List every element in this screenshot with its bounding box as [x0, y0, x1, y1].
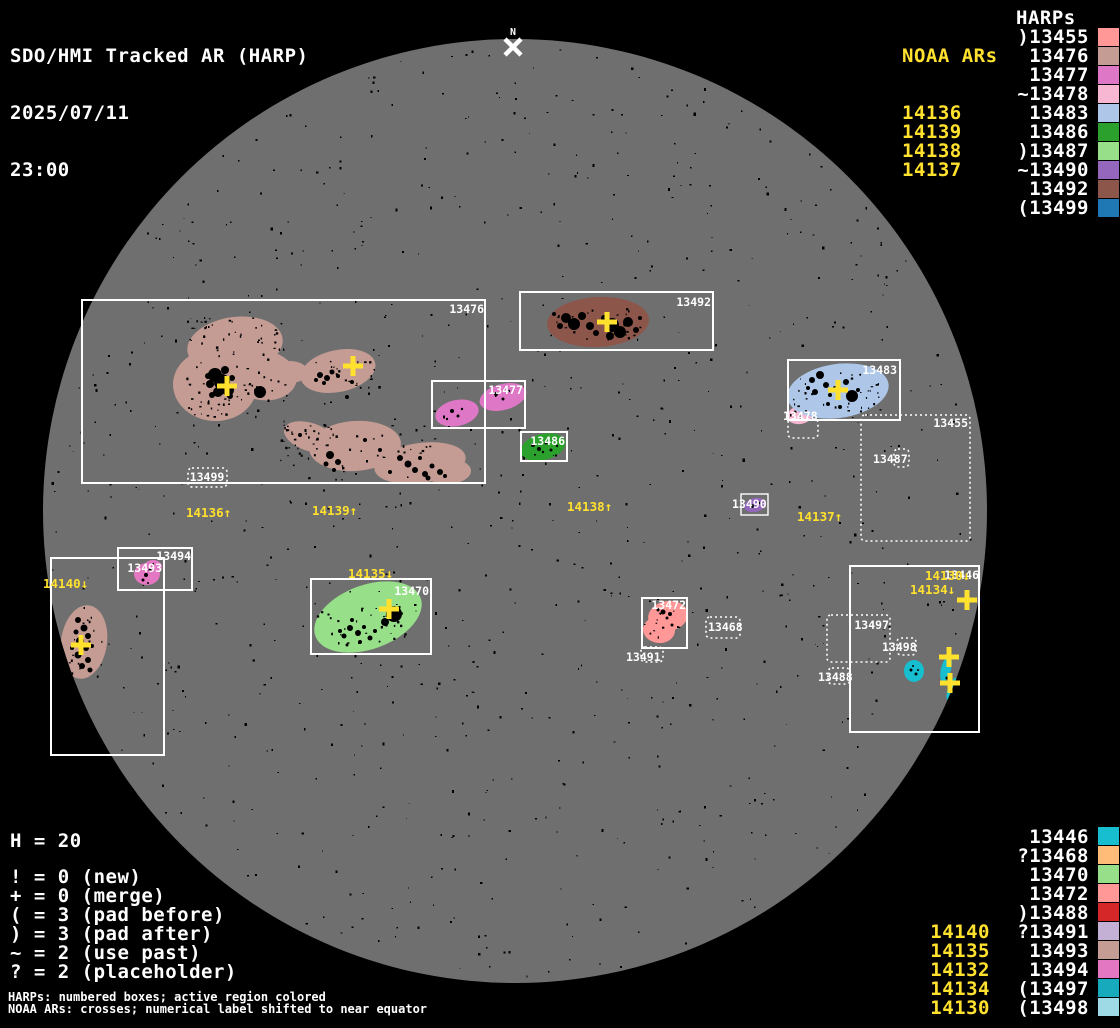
speckle-dot [276, 289, 278, 291]
noaa-ar-list-top: 14136141391413814137 [902, 104, 998, 180]
sunspot-speckle [305, 433, 307, 435]
sunspot-speckle [626, 314, 627, 316]
speckle-dot [671, 89, 673, 91]
speckle-dot [817, 848, 818, 849]
sunspot-speckle [206, 326, 207, 328]
sunspot-speckle [794, 403, 795, 405]
speckle-dot [571, 450, 572, 452]
sunspot-speckle [345, 380, 347, 382]
sunspot-speckle [194, 328, 195, 329]
speckle-dot [469, 646, 471, 648]
speckle-dot [241, 399, 242, 400]
sunspot-speckle [77, 618, 79, 619]
harp-label-13492: 13492 [676, 295, 711, 309]
sunspot-speckle [203, 335, 205, 338]
speckle-dot [264, 684, 266, 686]
speckle-dot [251, 448, 253, 451]
speckle-dot [941, 384, 942, 385]
speckle-dot [884, 283, 885, 284]
speckle-dot [787, 233, 788, 234]
speckle-dot [395, 507, 396, 508]
speckle-dot [629, 399, 630, 400]
speckle-dot [377, 90, 379, 92]
speckle-dot [955, 633, 956, 635]
speckle-dot [769, 140, 771, 142]
speckle-dot [834, 321, 836, 323]
speckle-dot [785, 208, 787, 211]
speckle-dot [441, 197, 443, 199]
speckle-dot [749, 803, 750, 804]
speckle-dot [670, 724, 672, 725]
speckle-dot [544, 386, 545, 387]
speckle-dot [889, 626, 891, 628]
speckle-dot [316, 171, 318, 173]
speckle-dot [167, 307, 169, 309]
speckle-dot [857, 746, 858, 748]
speckle-dot [664, 379, 666, 381]
speckle-dot [797, 675, 799, 677]
speckle-dot [382, 807, 384, 809]
speckle-dot [478, 953, 480, 956]
speckle-dot [458, 589, 460, 592]
sunspot-speckle [868, 390, 869, 391]
speckle-dot [547, 112, 549, 113]
harp-label-13472: 13472 [651, 598, 686, 612]
speckle-dot [651, 266, 653, 268]
speckle-dot [619, 577, 621, 578]
speckle-dot [666, 96, 668, 98]
speckle-dot [673, 591, 674, 592]
speckle-dot [503, 632, 504, 633]
sunspot-speckle [188, 407, 190, 409]
sunspot-speckle [196, 320, 198, 322]
sunspot-speckle [74, 639, 75, 641]
speckle-dot [415, 429, 417, 432]
sunspot-speckle [330, 617, 332, 619]
sunspot-speckle [208, 400, 209, 402]
speckle-dot [541, 211, 543, 213]
speckle-dot [713, 719, 714, 720]
speckle-dot [392, 702, 394, 704]
speckle-dot [298, 866, 300, 869]
sunspot-speckle [228, 403, 230, 405]
speckle-dot [173, 729, 175, 730]
sunspot [147, 582, 149, 584]
sunspot-speckle [224, 398, 226, 400]
speckle-dot [657, 810, 658, 811]
speckle-dot [621, 689, 622, 690]
sunspot-speckle [101, 641, 102, 643]
sunspot [142, 579, 145, 582]
speckle-dot [422, 72, 424, 74]
speckle-dot [835, 447, 837, 449]
speckle-dot [226, 224, 227, 226]
speckle-dot [191, 318, 192, 319]
speckle-dot [823, 643, 824, 644]
sunspot [79, 663, 85, 669]
speckle-dot [203, 797, 205, 798]
speckle-dot [679, 811, 681, 813]
speckle-dot [426, 148, 427, 149]
speckle-dot [485, 574, 487, 576]
speckle-dot [706, 609, 708, 612]
speckle-dot [349, 893, 351, 895]
sunspot-speckle [69, 662, 71, 663]
speckle-dot [79, 388, 80, 389]
sunspot-speckle [371, 378, 373, 380]
sunspot-speckle [383, 616, 385, 617]
speckle-dot [804, 535, 806, 537]
speckle-dot [480, 882, 482, 884]
speckle-dot [455, 196, 456, 197]
speckle-dot [436, 688, 437, 690]
speckle-dot [267, 565, 269, 567]
sunspot-speckle [364, 361, 367, 363]
speckle-dot [271, 390, 273, 392]
sunspot-speckle [204, 321, 207, 323]
speckle-dot [681, 185, 682, 186]
sunspot-speckle [308, 436, 310, 438]
speckle-dot [489, 966, 491, 967]
speckle-dot [555, 604, 557, 606]
speckle-dot [362, 241, 364, 243]
speckle-dot [686, 258, 688, 260]
speckle-dot [712, 867, 713, 868]
speckle-dot [502, 139, 504, 141]
speckle-dot [323, 489, 325, 491]
speckle-dot [410, 901, 411, 903]
sunspot-speckle [247, 368, 250, 369]
speckle-dot [368, 77, 369, 78]
sunspot [912, 665, 914, 667]
harp-label-13486: 13486 [530, 434, 565, 448]
speckle-dot [490, 525, 492, 526]
speckle-dot [769, 337, 770, 338]
harp-color-swatch [1098, 865, 1119, 883]
sunspot [668, 612, 672, 616]
speckle-dot [835, 827, 837, 828]
sunspot-speckle [556, 321, 557, 323]
speckle-dot [193, 243, 195, 244]
speckle-dot [749, 777, 750, 779]
symbol-legend: ! = 0 (new)+ = 0 (merge)( = 3 (pad befor… [10, 868, 237, 982]
sunspot-speckle [557, 317, 559, 319]
sunspot-speckle [284, 384, 286, 385]
speckle-dot [486, 792, 487, 793]
speckle-dot [522, 474, 524, 476]
speckle-dot [179, 231, 180, 232]
speckle-dot [956, 493, 958, 496]
sunspot [606, 332, 614, 340]
sunspot [823, 382, 829, 388]
speckle-dot [877, 227, 879, 229]
sunspot-speckle [626, 331, 628, 333]
sunspot-speckle [199, 406, 201, 408]
speckle-dot [854, 534, 856, 537]
speckle-dot [664, 433, 666, 435]
speckle-dot [710, 359, 712, 361]
speckle-dot [459, 968, 460, 969]
harp-color-swatch [1098, 104, 1119, 122]
speckle-dot [500, 716, 502, 718]
speckle-dot [468, 543, 469, 544]
harp-label-13494: 13494 [156, 549, 191, 563]
speckle-dot [576, 855, 577, 856]
speckle-dot [852, 279, 853, 280]
sunspot [206, 380, 214, 388]
speckle-dot [397, 546, 399, 547]
speckle-dot [391, 633, 392, 634]
sunspot-speckle [79, 668, 81, 669]
speckle-dot [858, 422, 859, 423]
speckle-dot [533, 68, 534, 69]
sunspot-speckle [252, 318, 254, 319]
sunspot [362, 625, 366, 629]
speckle-dot [229, 765, 230, 766]
speckle-dot [695, 153, 696, 154]
sunspot [443, 474, 447, 478]
speckle-dot [910, 390, 911, 392]
speckle-dot [823, 749, 825, 751]
speckle-dot [510, 589, 512, 591]
speckle-dot [685, 943, 687, 945]
sunspot-speckle [330, 361, 332, 362]
speckle-dot [371, 217, 372, 218]
speckle-dot [750, 899, 751, 900]
sunspot-speckle [623, 324, 625, 325]
speckle-dot [54, 491, 55, 492]
speckle-dot [657, 756, 658, 758]
speckle-dot [380, 665, 381, 666]
speckle-dot [637, 415, 639, 417]
sunspot-speckle [261, 342, 262, 344]
speckle-dot [832, 326, 834, 327]
speckle-dot [315, 778, 317, 780]
speckle-dot [360, 663, 362, 664]
speckle-dot [852, 572, 853, 573]
sunspot-speckle [211, 374, 213, 375]
speckle-dot [162, 784, 164, 787]
speckle-dot [627, 698, 628, 699]
sunspot-speckle [254, 389, 256, 391]
speckle-dot [406, 818, 407, 819]
speckle-dot [218, 424, 220, 427]
sunspot [397, 455, 403, 461]
speckle-dot [248, 295, 249, 296]
sunspot [324, 462, 329, 467]
sunspot-speckle [280, 460, 281, 461]
speckle-dot [587, 178, 589, 179]
sunspot-speckle [357, 361, 358, 363]
speckle-dot [548, 173, 550, 174]
speckle-dot [237, 582, 238, 583]
noaa-disk-label: 14138↑ [567, 499, 612, 514]
sunspot-speckle [338, 370, 340, 372]
speckle-dot [361, 745, 363, 746]
speckle-dot [515, 602, 517, 603]
sunspot-speckle [314, 454, 316, 456]
speckle-dot [544, 353, 546, 356]
sunspot [254, 386, 266, 398]
speckle-dot [276, 833, 278, 834]
speckle-dot [582, 567, 584, 569]
speckle-dot [748, 305, 749, 306]
speckle-dot [650, 270, 652, 272]
sunspot-speckle [218, 404, 220, 406]
sunspot-speckle [373, 438, 375, 439]
speckle-dot [567, 427, 569, 429]
speckle-dot [494, 651, 496, 654]
speckle-dot [182, 690, 184, 692]
speckle-dot [766, 187, 767, 188]
sunspot-speckle [558, 315, 560, 317]
harp-label-13483: 13483 [862, 363, 897, 377]
sunspot-speckle [336, 435, 338, 438]
speckle-dot [175, 339, 177, 342]
sunspot [335, 459, 341, 465]
harp-label-13455: 13455 [933, 416, 968, 430]
speckle-dot [92, 375, 94, 376]
speckle-dot [709, 185, 711, 186]
sunspot [568, 318, 580, 330]
speckle-dot [481, 485, 483, 487]
speckle-dot [395, 209, 397, 212]
speckle-dot [793, 324, 794, 325]
speckle-dot [625, 906, 627, 908]
speckle-dot [851, 242, 853, 243]
speckle-dot [720, 815, 722, 816]
speckle-dot [136, 616, 138, 618]
speckle-dot [694, 430, 695, 431]
speckle-dot [600, 918, 602, 921]
sunspot [450, 409, 454, 413]
speckle-dot [877, 275, 879, 277]
speckle-dot [433, 905, 434, 906]
speckle-dot [676, 683, 677, 684]
speckle-dot [343, 193, 344, 194]
speckle-dot [447, 749, 449, 751]
speckle-dot [519, 503, 521, 505]
sunspot-speckle [263, 354, 265, 357]
speckle-dot [850, 541, 852, 544]
speckle-dot [599, 963, 601, 964]
speckle-dot [521, 708, 523, 710]
sunspot [550, 449, 553, 452]
sunspot-speckle [379, 641, 381, 643]
sunspot [378, 448, 382, 452]
speckle-dot [563, 783, 565, 785]
speckle-dot [554, 143, 556, 145]
speckle-dot [454, 679, 456, 680]
speckle-dot [244, 530, 246, 532]
speckle-dot [361, 221, 362, 222]
sunspot [322, 381, 326, 385]
speckle-dot [387, 686, 388, 687]
speckle-dot [270, 677, 272, 679]
speckle-dot [663, 819, 664, 821]
speckle-dot [781, 584, 783, 586]
sunspot-speckle [263, 376, 265, 378]
sunspot-speckle [793, 399, 794, 401]
speckle-dot [301, 265, 303, 266]
speckle-dot [820, 166, 822, 168]
sunspot-speckle [378, 386, 381, 389]
speckle-dot [103, 454, 104, 455]
sunspot [856, 388, 860, 392]
speckle-dot [612, 109, 614, 111]
page-title: SDO/HMI Tracked AR (HARP) 2025/07/11 23:… [10, 9, 308, 218]
speckle-dot [708, 391, 709, 392]
sunspot-speckle [343, 471, 345, 472]
speckle-dot [882, 339, 884, 341]
harp-color-swatch [1098, 846, 1119, 864]
sunspot [85, 657, 91, 663]
speckle-dot [451, 526, 452, 528]
sunspot-speckle [360, 387, 362, 389]
speckle-dot [264, 623, 265, 625]
sunspot-speckle [434, 438, 436, 439]
sunspot-speckle [357, 634, 358, 635]
speckle-dot [639, 77, 640, 78]
speckle-dot [270, 557, 272, 559]
speckle-dot [557, 559, 559, 561]
sunspot-speckle [660, 614, 661, 615]
speckle-dot [94, 384, 96, 386]
sunspot-speckle [369, 361, 371, 363]
speckle-dot [704, 88, 706, 91]
speckle-dot [255, 874, 257, 876]
speckle-dot [489, 640, 491, 641]
sunspot-speckle [316, 448, 318, 450]
sunspot-speckle [314, 603, 316, 604]
speckle-dot [780, 331, 781, 332]
sunspot-speckle [553, 313, 554, 315]
speckle-dot [123, 687, 124, 689]
speckle-dot [514, 152, 516, 154]
harp-label-13477: 13477 [488, 383, 523, 397]
speckle-dot [341, 932, 343, 933]
speckle-dot [557, 245, 559, 247]
sunspot-speckle [624, 334, 627, 335]
speckle-dot [884, 635, 886, 638]
speckle-dot [743, 459, 745, 462]
speckle-dot [342, 518, 344, 519]
speckle-dot [524, 457, 526, 459]
speckle-dot [707, 677, 709, 678]
sunspot-speckle [221, 413, 222, 414]
sunspot [298, 433, 302, 437]
harp-label-13493: 13493 [127, 561, 162, 575]
speckle-dot [361, 245, 362, 246]
speckle-dot [155, 426, 156, 427]
sunspot-speckle [72, 655, 74, 656]
speckle-dot [672, 697, 674, 699]
speckle-dot [431, 877, 433, 879]
sunspot-speckle [213, 384, 215, 385]
speckle-dot [192, 221, 194, 223]
harp-label-13470: 13470 [394, 584, 429, 598]
speckle-dot [577, 172, 578, 174]
speckle-dot [887, 326, 889, 328]
speckle-dot [353, 232, 354, 233]
sunspot-speckle [225, 413, 227, 415]
sunspot [405, 461, 412, 468]
sunspot-speckle [217, 350, 219, 352]
speckle-dot [302, 833, 304, 835]
speckle-dot [764, 793, 766, 794]
noaa-ar-header: NOAA ARs [902, 47, 998, 66]
speckle-dot [457, 387, 458, 388]
